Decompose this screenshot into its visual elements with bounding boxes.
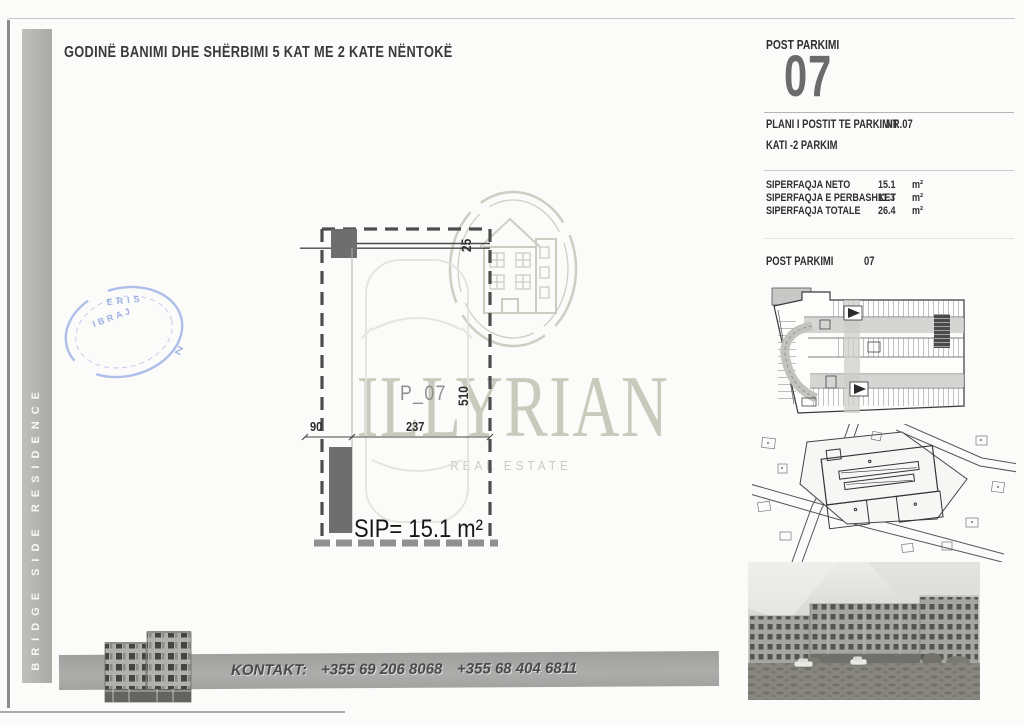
column-top: [331, 229, 357, 258]
dim-beam-label: 25: [458, 239, 474, 252]
garage-floorplan-thumbnail: [768, 286, 968, 418]
dim-wall-label: 90: [310, 419, 323, 434]
brand-sidebar-label: BRIDGE SIDE RESIDENCE: [30, 385, 42, 671]
area-row-unit: m²: [912, 192, 923, 204]
area-row-value: 26.4: [878, 205, 896, 217]
plan-number: NR.07: [886, 119, 913, 131]
dim-length-label: 510: [455, 386, 471, 406]
plan-label: PLANI I POSTIT TE PARKIMIT: [766, 119, 898, 131]
building-photo-thumbnail: [748, 562, 980, 700]
contact-phone-2: +355 68 404 6811: [457, 660, 577, 678]
post-row-label: POST PARKIMI: [766, 256, 833, 268]
scan-edge-top: [7, 18, 1015, 19]
brand-sidebar: BRIDGE SIDE RESIDENCE: [22, 29, 52, 683]
area-row-label: SIPERFAQJA E PERBASHKET: [766, 192, 896, 204]
scanned-sheet: BRIDGE SIDE RESIDENCE GODINË BANIMI DHE …: [0, 0, 1024, 725]
dimension-line: [302, 434, 493, 440]
parking-number-big: 07: [784, 48, 832, 106]
area-row-value: 11.3: [878, 192, 895, 204]
area-row-label: SIPERFAQJA NETO: [766, 179, 850, 191]
area-row-value: 15.1: [878, 179, 896, 191]
stamp-text-fragment: IBRAJ: [91, 305, 134, 329]
area-annotation: SIP= 15.1 m²: [354, 515, 483, 543]
building-elevation-thumbnail: [101, 629, 197, 711]
page-title: GODINË BANIMI DHE SHËRBIMI 5 KAT ME 2 KA…: [64, 44, 453, 62]
site-plan-thumbnail: [752, 424, 1016, 562]
contact-label: KONTAKT:: [231, 661, 307, 678]
area-row-unit: m²: [912, 205, 923, 217]
parking-spot-plan: 25 510 90 237 P_07 SIP= 15.1 m²: [288, 210, 612, 560]
post-row-value: 07: [864, 256, 874, 268]
floor-label: KATI -2 PARKIM: [766, 140, 837, 152]
panel-divider: [764, 170, 1014, 171]
panel-divider: [764, 112, 1014, 113]
contact-phone-1: +355 69 206 8068: [321, 661, 442, 679]
area-row-label: SIPERFAQJA TOTALE: [766, 205, 861, 217]
ink-stamp: ERIS IBRAJ Z: [56, 280, 192, 398]
spot-label: P_07: [400, 382, 447, 406]
scan-edge-left: [7, 20, 10, 708]
dim-width-label: 237: [406, 419, 425, 434]
wall-segment: [329, 447, 352, 533]
scan-edge-bottom: [0, 711, 345, 713]
panel-divider: [764, 238, 1014, 239]
area-row-unit: m²: [912, 179, 923, 191]
lawn: [748, 663, 980, 700]
stamp-text-fragment: ERIS: [106, 293, 144, 307]
